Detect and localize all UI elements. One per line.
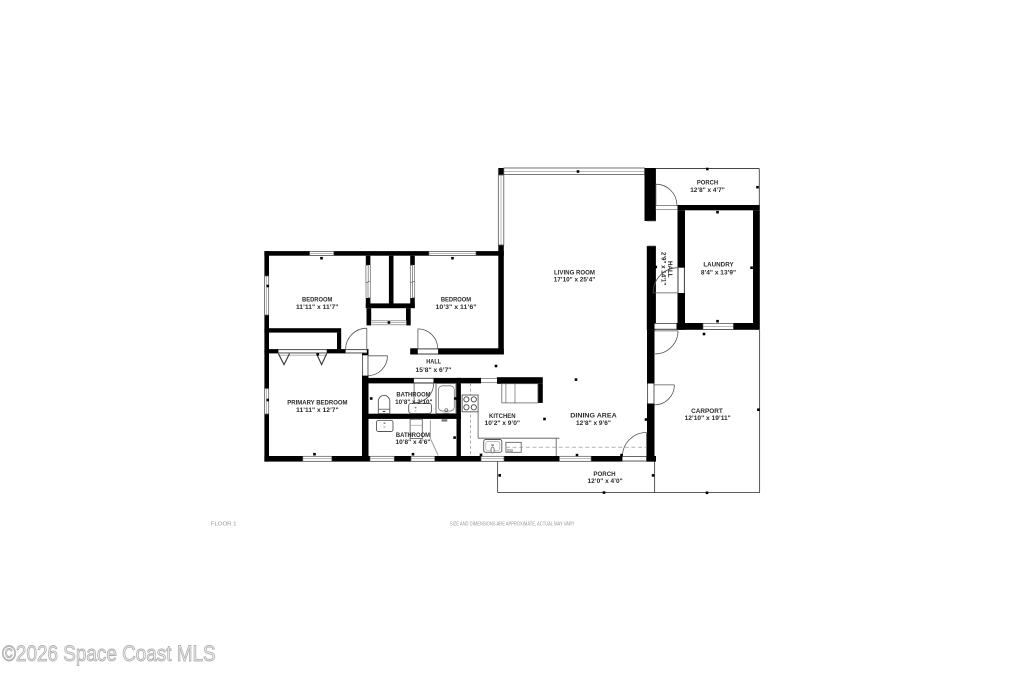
svg-text:BEDROOM: BEDROOM bbox=[302, 296, 333, 303]
svg-text:HALL: HALL bbox=[426, 359, 441, 366]
svg-text:CARPORT: CARPORT bbox=[691, 408, 723, 415]
svg-text:10’3" x 11’6": 10’3" x 11’6" bbox=[436, 304, 477, 311]
svg-text:KITCHEN: KITCHEN bbox=[489, 413, 516, 420]
svg-text:LIVING ROOM: LIVING ROOM bbox=[554, 269, 595, 276]
svg-text:BATHROOM: BATHROOM bbox=[396, 432, 430, 439]
svg-text:10’2" x 9’0": 10’2" x 9’0" bbox=[485, 420, 521, 427]
svg-text:LAUNDRY: LAUNDRY bbox=[703, 262, 734, 269]
svg-text:11’11" x 11’7": 11’11" x 11’7" bbox=[296, 304, 339, 311]
svg-text:11’11" x 12’7": 11’11" x 12’7" bbox=[296, 407, 339, 414]
svg-text:12’8" x 9’6": 12’8" x 9’6" bbox=[576, 420, 611, 427]
svg-text:DW: DW bbox=[508, 449, 513, 453]
svg-text:15’8" x 6’7": 15’8" x 6’7" bbox=[416, 367, 452, 374]
svg-text:PORCH: PORCH bbox=[697, 180, 718, 187]
svg-text:10’8" x 4’6": 10’8" x 4’6" bbox=[396, 439, 431, 446]
svg-text:©2026 Space Coast MLS: ©2026 Space Coast MLS bbox=[2, 641, 216, 666]
svg-text:PRIMARY BEDROOM: PRIMARY BEDROOM bbox=[287, 399, 348, 406]
svg-text:DINING AREA: DINING AREA bbox=[570, 413, 616, 420]
svg-text:17’10" x 25’4": 17’10" x 25’4" bbox=[554, 277, 596, 284]
svg-text:BATHROOM: BATHROOM bbox=[396, 392, 430, 399]
svg-text:12’10" x 19’11": 12’10" x 19’11" bbox=[685, 415, 731, 422]
svg-text:SIZE AND DIMENSIONS ARE APPROX: SIZE AND DIMENSIONS ARE APPROXIMATE, ACT… bbox=[450, 521, 575, 527]
svg-text:BEDROOM: BEDROOM bbox=[441, 296, 472, 303]
svg-text:PORCH: PORCH bbox=[593, 471, 615, 478]
svg-text:8’4" x 13’9": 8’4" x 13’9" bbox=[701, 270, 736, 277]
svg-text:12’8" x 4’7": 12’8" x 4’7" bbox=[690, 187, 725, 194]
svg-text:10’8" x 3’10": 10’8" x 3’10" bbox=[395, 399, 432, 406]
svg-text:2’9" x 14’1": 2’9" x 14’1" bbox=[659, 252, 666, 285]
svg-text:FLOOR 1: FLOOR 1 bbox=[211, 521, 237, 527]
svg-text:12’0" x 4’0": 12’0" x 4’0" bbox=[588, 478, 623, 485]
